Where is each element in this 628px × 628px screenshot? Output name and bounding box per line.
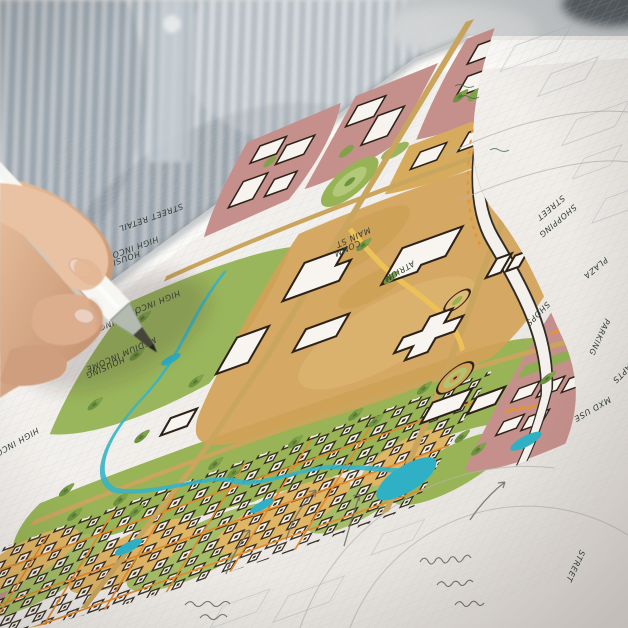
photo-urban-planner-sketch: STREET RETAIL HIGH INCOME HOUSING HIGH I… <box>0 0 628 628</box>
vignette <box>0 0 628 628</box>
